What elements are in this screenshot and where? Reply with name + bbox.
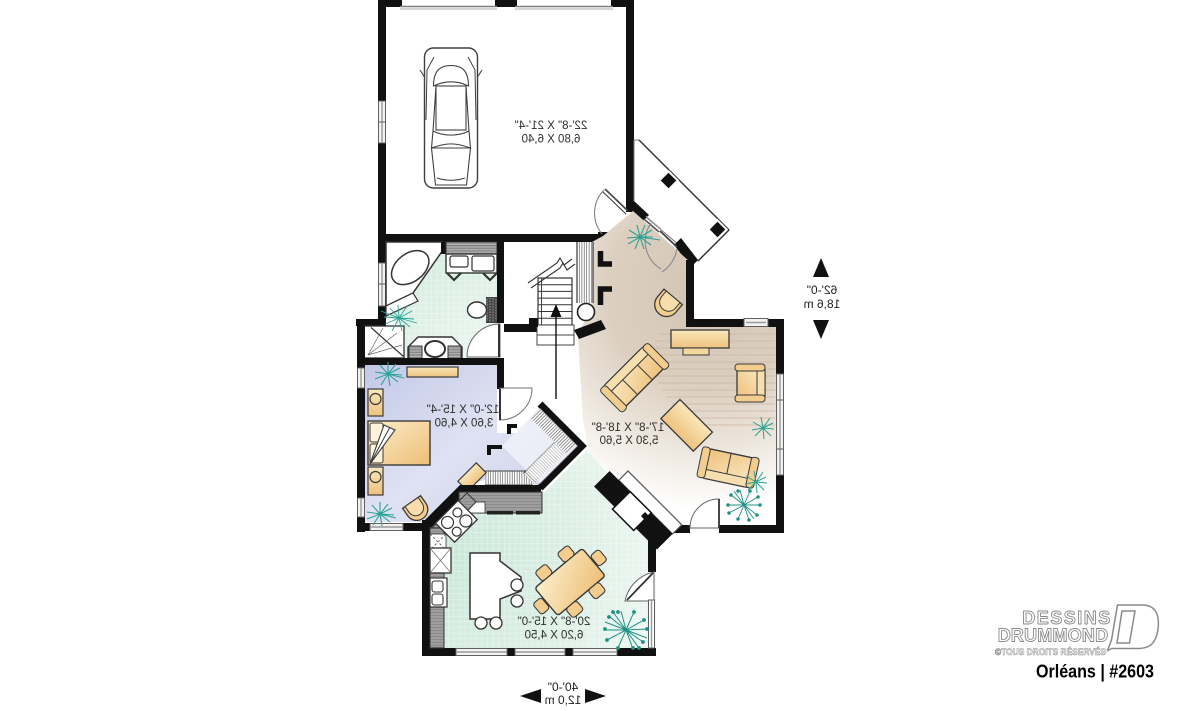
svg-text:22'-8" X 21'-4": 22'-8" X 21'-4" — [515, 120, 588, 132]
svg-text:62'-0": 62'-0" — [807, 283, 838, 297]
svg-text:17'-8" X 18'-8": 17'-8" X 18'-8" — [592, 422, 665, 434]
svg-text:3,60 X 4,60: 3,60 X 4,60 — [435, 418, 494, 430]
svg-text:20'-8" X 15'-0": 20'-8" X 15'-0" — [518, 616, 591, 628]
svg-text:5,30 X 5,60: 5,30 X 5,60 — [600, 435, 659, 447]
svg-text:12,0 m: 12,0 m — [545, 693, 582, 707]
svg-text:18,6 m: 18,6 m — [804, 297, 841, 311]
svg-text:12'-0" X 15'-4": 12'-0" X 15'-4" — [427, 404, 500, 416]
svg-text:DRUMMOND: DRUMMOND — [998, 626, 1109, 646]
svg-text:6,20 X 4,50: 6,20 X 4,50 — [525, 630, 584, 642]
svg-text:40'-0": 40'-0" — [548, 680, 579, 694]
svg-text:6,80 X 6,40: 6,80 X 6,40 — [522, 134, 581, 146]
svg-text:©TOUS DROITS RÉSERVÉS: ©TOUS DROITS RÉSERVÉS — [995, 647, 1106, 657]
svg-text:Orléans | #2603: Orléans | #2603 — [1036, 661, 1154, 682]
